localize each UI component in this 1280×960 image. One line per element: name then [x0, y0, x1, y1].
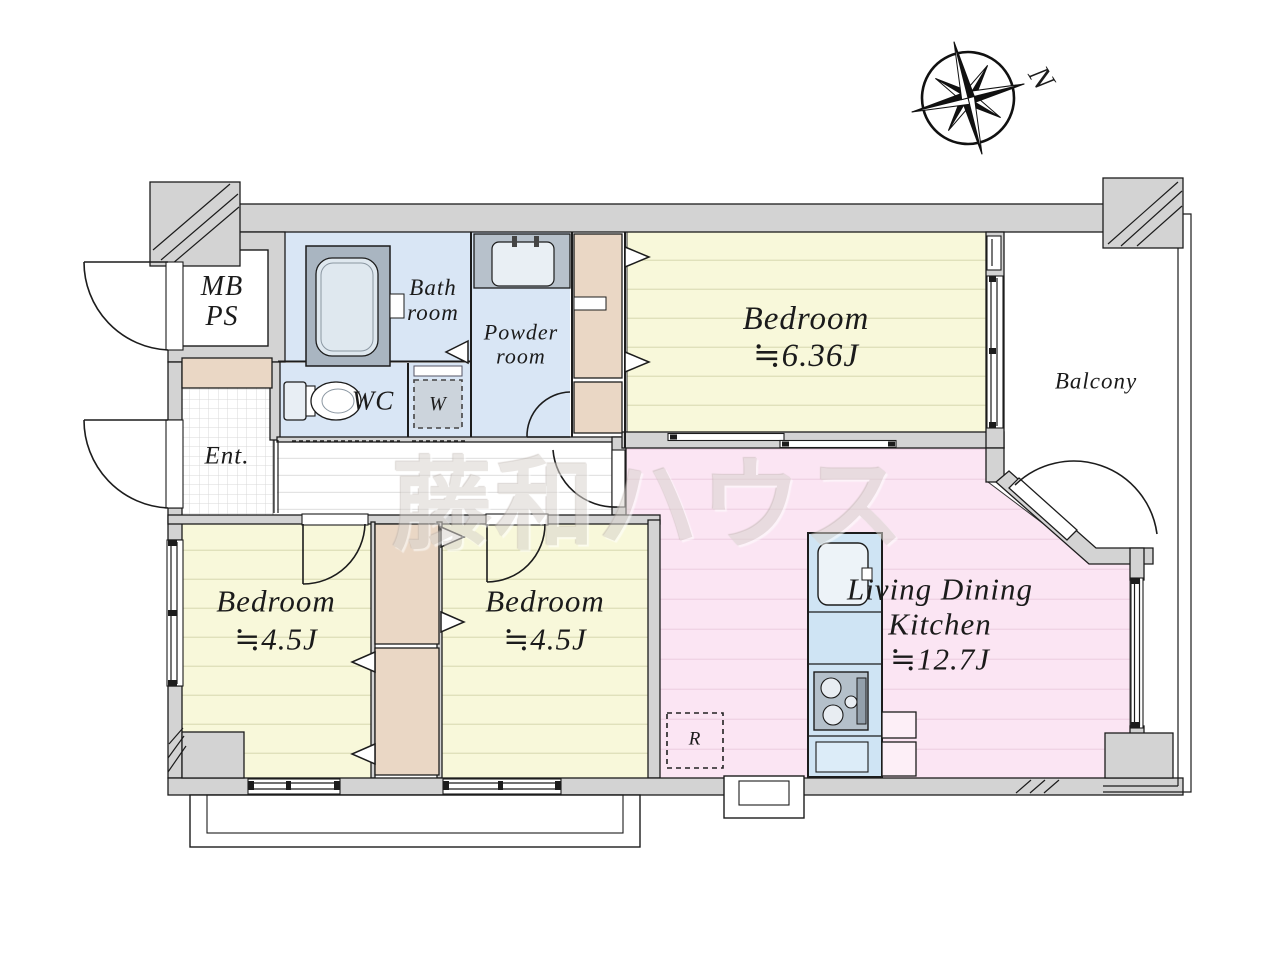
label-ldk-line2: Kitchen: [888, 607, 991, 640]
label-powder-room: Powderroom: [484, 320, 558, 368]
window-west-wall: [167, 540, 183, 686]
closet-bedroom-west: [375, 648, 439, 775]
door-arc-meterbox: [84, 262, 168, 350]
window-ldk-balcony: [1131, 578, 1143, 728]
shoe-cabinet: [182, 358, 272, 388]
label-bedroom-west-size: ≒4.5J: [234, 622, 317, 655]
window-bedroom-center-south: [443, 779, 561, 794]
label-bedroom-center-size: ≒4.5J: [503, 622, 586, 655]
label-balcony: Balcony: [1055, 370, 1137, 395]
label-ldk-line1: Living Dining: [847, 572, 1033, 605]
watermark: 藤和ハウス: [392, 424, 892, 569]
label-entrance: Ent.: [205, 443, 250, 470]
label-bathroom: Bathroom: [407, 276, 459, 326]
label-wc: WC: [352, 386, 395, 415]
label-bedroom-main-size: ≒6.36J: [753, 339, 859, 375]
toilet-icon: [284, 382, 361, 420]
label-bedroom-west: Bedroom: [216, 584, 336, 617]
label-meter-box: MBPS: [201, 272, 243, 332]
washbasin-icon: [474, 234, 570, 288]
door-arc-entrance: [84, 420, 168, 508]
bathtub-icon: [306, 246, 404, 366]
window-bedroom-west-south: [248, 779, 340, 794]
label-washer: W: [429, 394, 447, 416]
pillar-top-left: [150, 182, 240, 266]
stove-icon: [814, 672, 868, 730]
window-bedroom-main-balcony: [987, 236, 1003, 428]
label-refrigerator: R: [689, 730, 702, 751]
pillar-top-right: [1103, 178, 1183, 248]
label-ldk-size: ≒12.7J: [890, 642, 990, 675]
label-bedroom-center: Bedroom: [485, 584, 605, 617]
label-bedroom-main: Bedroom: [743, 302, 870, 338]
floorplan-page: MBPS Bathroom Powderroom WC W Ent. Bedro…: [0, 0, 1280, 960]
compass-icon: [898, 28, 1039, 169]
